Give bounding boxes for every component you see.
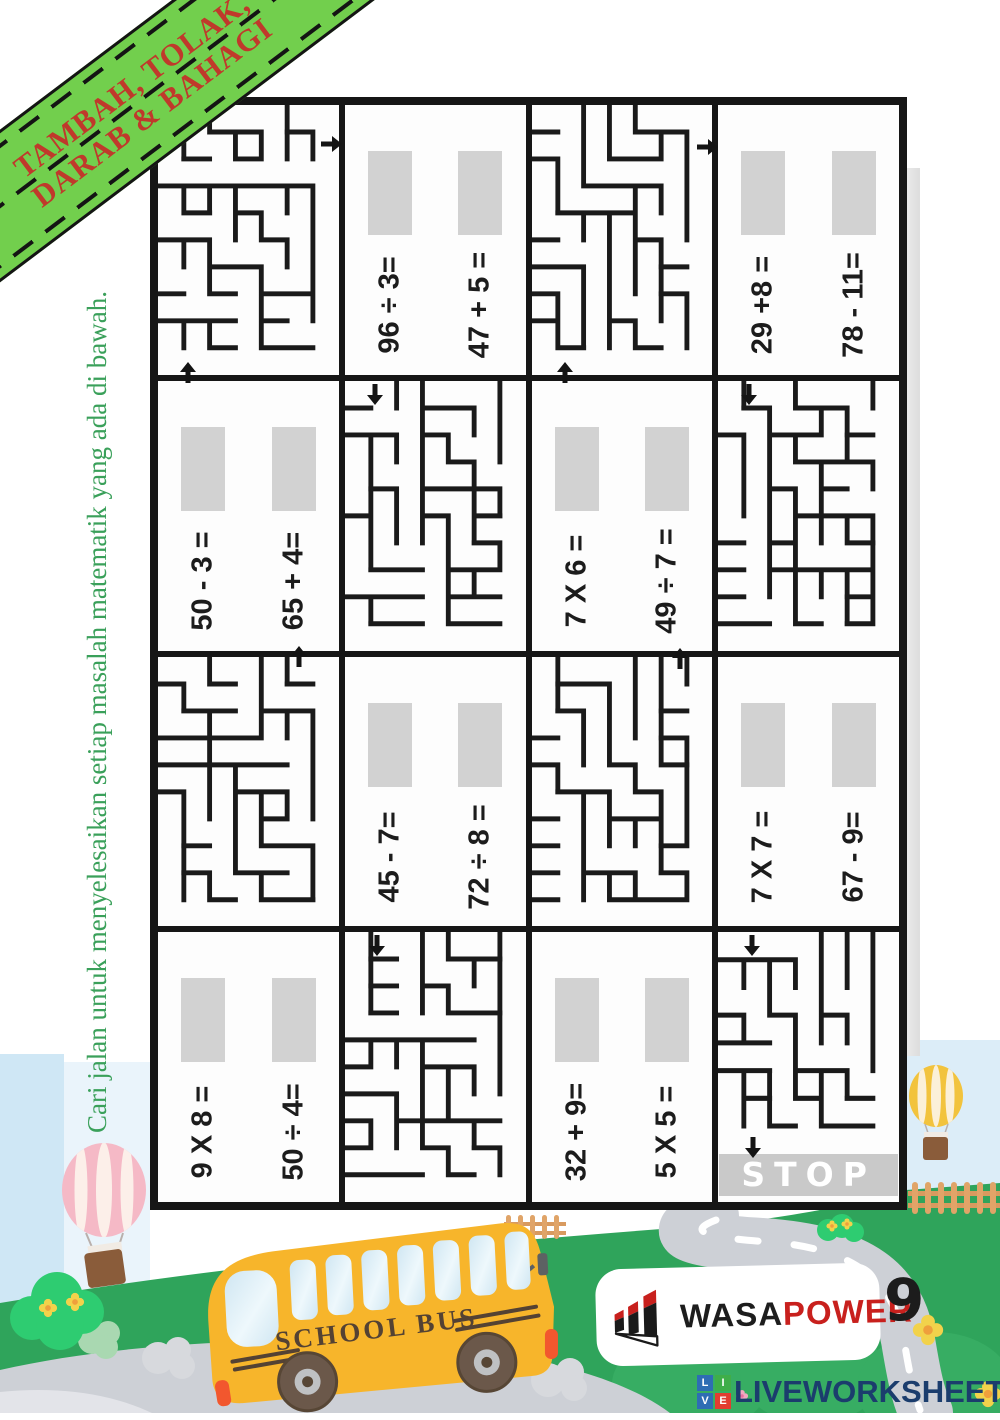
page-edge-shadow xyxy=(907,168,920,1056)
arrow-down-icon xyxy=(365,933,389,957)
answer-box[interactable] xyxy=(272,978,316,1062)
math-problem: 50 - 3 = xyxy=(187,531,220,630)
problem-cell: 9 X 8 = 50 ÷ 4= xyxy=(155,929,342,1205)
stop-label: STOP xyxy=(719,1154,898,1196)
answer-box[interactable] xyxy=(368,703,412,787)
problem-cell: 32 + 9= 5 X 5 = xyxy=(529,929,716,1205)
answer-box[interactable] xyxy=(645,427,689,511)
math-problem: 32 + 9= xyxy=(560,1083,593,1181)
arrow-up-icon xyxy=(287,645,311,669)
math-problem: 7 X 6 = xyxy=(560,534,593,627)
arrow-down-icon xyxy=(737,382,761,406)
maze-cell xyxy=(342,378,529,654)
math-problem: 47 + 5 = xyxy=(464,252,497,358)
arrow-up-icon xyxy=(668,647,692,671)
problem-cell: 45 - 7= 72 ÷ 8 = xyxy=(342,654,529,930)
answer-box[interactable] xyxy=(368,151,412,235)
liveworksheets-footer: L I V E LIVEWORKSHEETS xyxy=(697,1374,1000,1410)
maze-grid: 96 ÷ 3= 47 + 5 = 29 +8 = 78 - 11= 50 - 3… xyxy=(150,97,907,1210)
problem-cell: 50 - 3 = 65 + 4= xyxy=(155,378,342,654)
math-problem: 5 X 5 = xyxy=(651,1086,684,1179)
math-problem: 45 - 7= xyxy=(373,811,406,902)
arrow-right-icon xyxy=(319,132,343,156)
math-problem: 49 ÷ 7 = xyxy=(651,528,684,633)
answer-box[interactable] xyxy=(181,427,225,511)
answer-box[interactable] xyxy=(832,703,876,787)
math-problem: 9 X 8 = xyxy=(187,1086,220,1179)
logo-letter: V xyxy=(697,1393,713,1409)
wasapower-wordmark: WASAPOWER xyxy=(680,1291,914,1335)
answer-box[interactable] xyxy=(741,703,785,787)
bus-front-light xyxy=(545,1329,558,1359)
maze-cell xyxy=(529,654,716,930)
logo-letter: I xyxy=(715,1375,731,1391)
school-bus-illustration: SCHOOL BUS xyxy=(181,1202,573,1420)
bus-mirror xyxy=(537,1253,548,1275)
answer-box[interactable] xyxy=(555,978,599,1062)
math-problem: 78 - 11= xyxy=(837,252,870,358)
worksheet-page: { "banner": {"line1": "TAMBAH, TOLAK,", … xyxy=(0,0,1000,1413)
wasapower-mark-icon xyxy=(609,1284,675,1350)
problem-cell: 7 X 7 = 67 - 9= xyxy=(715,654,902,930)
math-problem: 67 - 9= xyxy=(837,811,870,902)
math-problem: 72 ÷ 8 = xyxy=(464,804,497,909)
answer-box[interactable] xyxy=(645,978,689,1062)
maze-cell xyxy=(715,378,902,654)
answer-box[interactable] xyxy=(458,151,502,235)
arrow-down-icon xyxy=(740,933,764,957)
liveworksheets-logo-icon: L I V E xyxy=(697,1375,731,1409)
answer-box[interactable] xyxy=(272,427,316,511)
answer-box[interactable] xyxy=(741,151,785,235)
arrow-up-icon xyxy=(176,361,200,385)
arrow-down-icon xyxy=(741,1135,765,1159)
math-problem: 7 X 7 = xyxy=(747,810,780,903)
brand-wasa: WASA xyxy=(680,1294,784,1334)
problem-cell: 7 X 6 = 49 ÷ 7 = xyxy=(529,378,716,654)
maze-cell xyxy=(529,102,716,378)
instruction-text: Cari jalan untuk menyelesaikan setiap ma… xyxy=(76,202,118,1222)
answer-box[interactable] xyxy=(181,978,225,1062)
wasapower-logo-card: WASAPOWER xyxy=(595,1262,881,1366)
liveworksheets-wordmark: LIVEWORKSHEETS xyxy=(734,1374,1000,1410)
arrow-down-icon xyxy=(363,382,387,406)
maze-cell-stop: STOP xyxy=(715,929,902,1205)
arrow-right-icon xyxy=(695,135,719,159)
math-problem: 96 ÷ 3= xyxy=(373,256,406,353)
answer-box[interactable] xyxy=(458,703,502,787)
logo-letter: E xyxy=(715,1393,731,1409)
problem-cell: 96 ÷ 3= 47 + 5 = xyxy=(342,102,529,378)
bus-window-large xyxy=(224,1269,280,1348)
answer-box[interactable] xyxy=(832,151,876,235)
problem-cell: 29 +8 = 78 - 11= xyxy=(715,102,902,378)
maze-cell xyxy=(155,654,342,930)
logo-letter: L xyxy=(697,1375,713,1391)
math-problem: 65 + 4= xyxy=(277,532,310,630)
math-problem: 29 +8 = xyxy=(747,256,780,354)
arrow-up-icon xyxy=(553,361,577,385)
math-problem: 50 ÷ 4= xyxy=(277,1084,310,1181)
page-number: 9 xyxy=(884,1266,924,1334)
answer-box[interactable] xyxy=(555,427,599,511)
bus-wheel-rear xyxy=(277,1351,338,1412)
bus-wheel-front xyxy=(456,1332,517,1393)
maze-cell xyxy=(342,929,529,1205)
